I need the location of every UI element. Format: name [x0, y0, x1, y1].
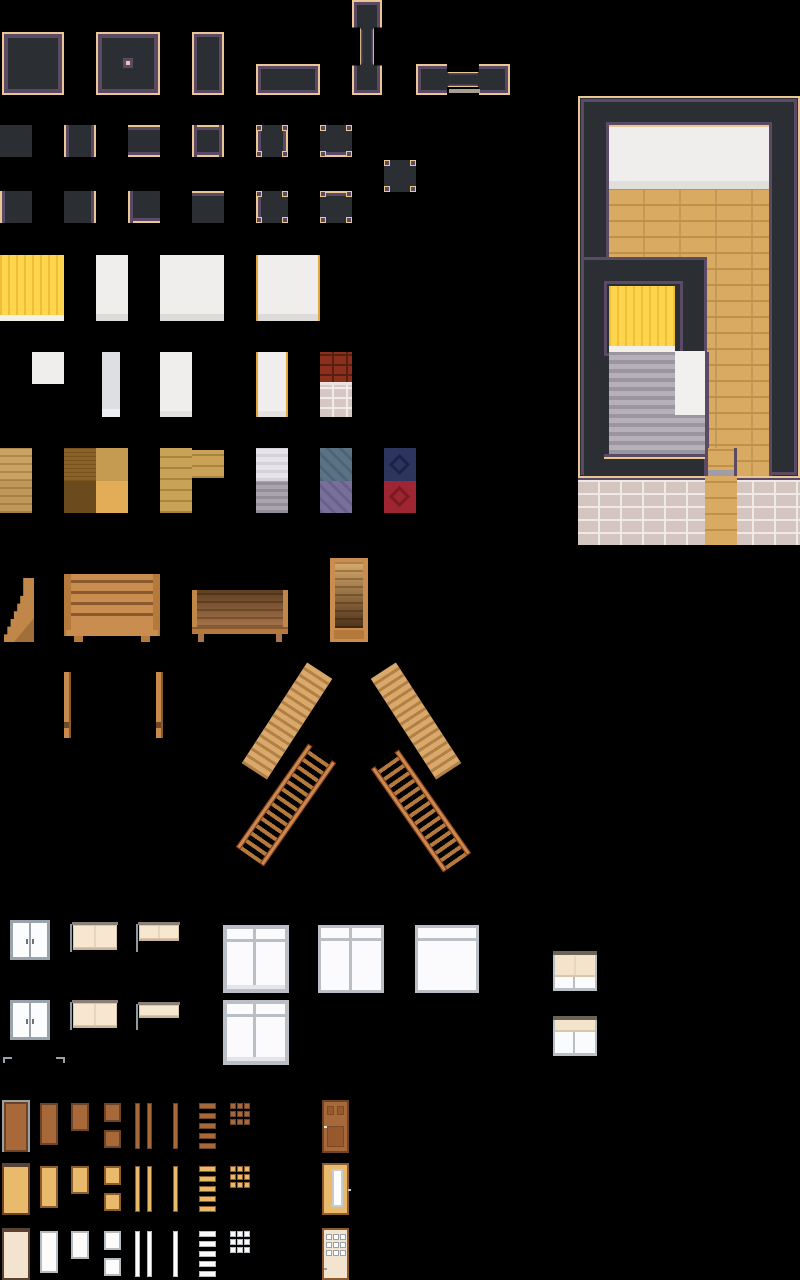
door-tan-grid: [230, 1166, 250, 1188]
cell: [237, 1166, 243, 1172]
glass: [555, 1032, 595, 1053]
wall-shadow: [609, 181, 769, 189]
diamond-motif: [389, 486, 410, 507]
edge-right-cream: [94, 191, 96, 223]
handles: [26, 939, 34, 944]
carpet-diamond: [384, 448, 416, 513]
foundation-bricks: [578, 478, 800, 545]
glass: [227, 1004, 285, 1061]
bottom-edge: [139, 1016, 179, 1018]
door-tan-bar-1: [135, 1166, 140, 1212]
wall-block-purple: [258, 66, 318, 93]
cell: [230, 1166, 236, 1172]
wall-tile-lb: [128, 191, 160, 223]
wood-post-a: [64, 672, 71, 738]
corner-block: [256, 151, 262, 157]
house-preview: [578, 96, 800, 545]
wall-white-tall-orange: [256, 352, 288, 417]
divider: [94, 926, 96, 947]
edge-bottom-purple: [128, 152, 160, 155]
corner-block: [346, 151, 352, 157]
cell: [244, 1247, 250, 1253]
window-shade-a: [553, 951, 597, 991]
shutter-wide-b: [72, 1000, 118, 1028]
door-tan-full: [2, 1163, 30, 1215]
door-leaf: [4, 1102, 28, 1152]
cell: [237, 1103, 243, 1109]
window-cell: [333, 1250, 339, 1256]
edge-left-purple: [194, 125, 197, 157]
wall-white-wide: [160, 255, 224, 321]
door-handle: [324, 1126, 327, 1128]
floor-wood-l-shape: [160, 448, 224, 513]
block-top: [104, 1103, 121, 1122]
curtain-rod-end-left: [3, 1057, 12, 1063]
door-brown-tall: [40, 1103, 58, 1145]
diamond-motif: [389, 454, 410, 475]
rough-dark: [64, 448, 96, 481]
corner-block: [282, 151, 288, 157]
wall-tile-frame: [192, 125, 224, 157]
wall-pillar-vertical: [352, 0, 382, 95]
left-column: [160, 448, 192, 513]
right-post: [153, 574, 160, 636]
shutter-rod-a: [70, 924, 72, 952]
cell: [230, 1103, 236, 1109]
tileset-sheet: [0, 0, 800, 1280]
slat: [199, 1271, 216, 1277]
wall-tile-t-corners: [320, 191, 352, 223]
corner-block: [320, 125, 326, 131]
connector-underline: [449, 89, 480, 93]
mullion: [349, 928, 352, 990]
cell: [230, 1111, 236, 1117]
corner-block: [282, 191, 288, 197]
door-tan-mid: [71, 1166, 89, 1194]
window-large-c: [223, 1000, 289, 1065]
block-bottom: [104, 1258, 121, 1276]
transom-bar: [227, 1014, 285, 1017]
shadow-edge: [258, 314, 318, 321]
leg-right: [141, 636, 150, 642]
window-cell: [333, 1234, 339, 1240]
edge-left-purple: [66, 125, 69, 157]
wall-white-narrow: [96, 255, 128, 321]
dark-brown: [64, 481, 96, 513]
shutter-short-a: [138, 922, 180, 941]
leg-left: [198, 634, 204, 642]
cell: [230, 1247, 236, 1253]
corner-block: [384, 160, 390, 166]
stair-wedge: [4, 578, 34, 642]
glass: [555, 977, 595, 988]
wall-tile-lr: [64, 125, 96, 157]
shutter-rod-b: [136, 924, 138, 952]
corner-block: [410, 160, 416, 166]
door-brown-grid: [230, 1103, 250, 1125]
corner-block: [346, 191, 352, 197]
lower-planks: [0, 480, 32, 513]
wall-tile-tb: [128, 125, 160, 157]
slat: [199, 1143, 216, 1149]
door-brown-complete: [322, 1100, 349, 1153]
door-tan-bar-2: [147, 1166, 152, 1212]
cell: [244, 1231, 250, 1237]
lower-steps: [256, 481, 288, 513]
right-top: [192, 450, 224, 478]
door-cream-full: [2, 1228, 30, 1280]
light-base: [102, 409, 120, 417]
shutter-rod-d: [136, 1004, 138, 1030]
wedge-shadow: [14, 618, 34, 642]
house-walls: [578, 96, 800, 478]
cell: [244, 1174, 250, 1180]
window-large-a: [223, 925, 289, 993]
corner-block: [320, 191, 326, 197]
bench-crate: [64, 574, 160, 642]
shadow-edge: [96, 314, 128, 321]
edge-right-cream: [94, 125, 96, 157]
leg-left: [74, 636, 83, 642]
slat: [199, 1186, 216, 1192]
corner-block: [256, 125, 262, 131]
slat: [199, 1261, 216, 1267]
bottom-edge: [73, 948, 117, 950]
carpet-diagonal: [320, 448, 352, 513]
door-brown-two-blocks: [104, 1103, 121, 1148]
wood-post-b: [156, 672, 163, 738]
edge-right-purple: [219, 125, 222, 157]
slat: [199, 1133, 216, 1139]
window-cell: [326, 1242, 332, 1248]
cell: [230, 1231, 236, 1237]
door-cream-complete: [322, 1228, 349, 1280]
edge-right-cream: [222, 125, 224, 157]
stairs-railing-right: [371, 750, 471, 873]
center-dot-cream: [126, 61, 130, 65]
back-slats: [196, 590, 284, 627]
window-double-b: [10, 1000, 50, 1040]
shadow-edge: [160, 314, 224, 321]
wall-block-large: [2, 32, 64, 95]
cell: [237, 1231, 243, 1237]
glass: [227, 929, 285, 989]
wall-tile-t: [192, 191, 224, 223]
door-white-tall: [40, 1231, 58, 1273]
mullion: [253, 929, 256, 989]
panel-bottom: [327, 1126, 344, 1147]
balusters: [375, 753, 467, 870]
corner-block: [320, 151, 326, 157]
cell: [237, 1174, 243, 1180]
shutter-short-b: [138, 1002, 180, 1018]
stairs-front-gray: [256, 448, 288, 513]
sill: [227, 985, 285, 989]
panel-top-left: [327, 1106, 334, 1115]
corner-block: [282, 125, 288, 131]
glass-panel: [332, 1169, 343, 1207]
edge-top-purple: [192, 193, 224, 196]
window-large-single: [415, 925, 479, 993]
window-shade-b: [553, 1016, 597, 1056]
curtain-rod-end-right: [56, 1057, 65, 1063]
slat: [199, 1103, 216, 1109]
door-tan-slats: [199, 1166, 216, 1212]
wall-gray-strip: [102, 352, 120, 417]
divider: [158, 926, 160, 938]
slat: [199, 1166, 216, 1172]
connector-fill: [421, 69, 505, 90]
edge-left-purple: [130, 191, 133, 223]
cell: [244, 1103, 250, 1109]
corner-block: [346, 125, 352, 131]
cell: [230, 1174, 236, 1180]
panel: [139, 1005, 179, 1016]
block-bottom: [104, 1193, 121, 1211]
treads: [335, 562, 363, 628]
mullion: [573, 977, 575, 988]
cell: [237, 1111, 243, 1117]
bench-backrest: [192, 590, 288, 642]
door-step: [708, 470, 734, 476]
doorway-column: [705, 448, 737, 545]
slat: [199, 1196, 216, 1202]
brick-chimney: [320, 352, 352, 417]
base-block: [334, 630, 364, 639]
slat: [199, 1113, 216, 1119]
cell: [237, 1119, 243, 1125]
slat: [199, 1251, 216, 1257]
panel-top-right: [337, 1106, 344, 1115]
wall-block-purple: [194, 34, 222, 93]
shade: [555, 1020, 595, 1032]
bottom-edge: [139, 939, 179, 941]
wall-block-fill: [261, 69, 315, 90]
stairs-top-view: [330, 558, 368, 642]
slat: [199, 1241, 216, 1247]
door-brown-mid: [71, 1103, 89, 1131]
corner-block: [282, 217, 288, 223]
cell: [244, 1182, 250, 1188]
slats: [66, 574, 158, 616]
wall-block-half: [192, 32, 224, 95]
pillar-purple: [354, 2, 380, 93]
door-handle: [324, 1268, 327, 1270]
door-white-bar-2: [147, 1231, 152, 1277]
mullion: [253, 1004, 256, 1061]
wall-tile-corners-only: [384, 160, 416, 192]
edge-right-purple: [91, 125, 94, 157]
pillar-fill: [357, 5, 377, 90]
wall-tile-r: [64, 191, 96, 223]
corner-block: [384, 186, 390, 192]
navy-half: [384, 448, 416, 481]
slat: [199, 1231, 216, 1237]
wall-tile-l: [0, 191, 32, 223]
corner-block: [320, 217, 326, 223]
block-bottom: [104, 1130, 121, 1148]
door-handle: [348, 1189, 351, 1191]
transom-bar: [418, 938, 476, 941]
left-post: [64, 574, 71, 636]
cell: [237, 1239, 243, 1245]
window-cell: [333, 1242, 339, 1248]
pink-bricks: [320, 385, 352, 417]
edge-bottom-cream: [128, 155, 160, 157]
window-cell: [340, 1242, 346, 1248]
wall-block-dot: [96, 32, 160, 95]
door-brown-bar-1: [135, 1103, 140, 1149]
room-wall-white: [609, 125, 769, 189]
cell: [237, 1247, 243, 1253]
shadow-edge: [160, 411, 192, 417]
window-cell: [340, 1234, 346, 1240]
cell: [244, 1239, 250, 1245]
leg-right: [276, 634, 282, 642]
post-band: [64, 722, 69, 728]
wall-tile-plain: [0, 125, 32, 157]
corner-block: [410, 186, 416, 192]
mullion: [573, 1032, 575, 1053]
floor-wood-quad: [64, 448, 128, 513]
wall-tile-b-corners: [320, 125, 352, 157]
door-white-slats: [199, 1231, 216, 1277]
wall-tile-l-corners: [256, 191, 288, 223]
slat: [199, 1123, 216, 1129]
board: [66, 616, 158, 630]
shutter-rod-c: [70, 1002, 72, 1030]
divider: [94, 1004, 96, 1025]
yellow-room-floor: [609, 286, 675, 346]
door-brown-full: [2, 1100, 30, 1152]
door-tan-two-blocks: [104, 1166, 121, 1211]
center-dot-purple: [123, 58, 133, 68]
door-brown-bar-2: [147, 1103, 152, 1149]
slat: [199, 1206, 216, 1212]
wall-block-fill: [8, 38, 58, 89]
wall-white-small: [32, 352, 64, 384]
purple-half: [320, 481, 352, 513]
door-jamb-right: [734, 448, 737, 476]
corner-block: [256, 217, 262, 223]
door-brown-bar-3: [173, 1103, 178, 1149]
bottom-edge: [73, 1026, 117, 1028]
stairwell-wall-right: [705, 352, 709, 454]
door-tan-bar-3: [173, 1166, 178, 1212]
wall-block-low: [256, 64, 320, 95]
edge-right-purple: [91, 191, 94, 223]
window-cell: [326, 1250, 332, 1256]
door-brown-slats: [199, 1103, 216, 1149]
upper-steps: [256, 448, 288, 481]
stairwell-border-bottom: [604, 454, 709, 459]
shutter-wide-a: [72, 922, 118, 950]
wall-block-purple: [98, 34, 158, 93]
corner-block: [346, 217, 352, 223]
edge-left-purple: [2, 191, 5, 223]
transom-bar: [227, 939, 285, 942]
cell: [244, 1119, 250, 1125]
corner-block: [256, 191, 262, 197]
cell: [230, 1182, 236, 1188]
block-top: [104, 1166, 121, 1185]
cell: [244, 1111, 250, 1117]
wall-tile-lr-corners: [256, 125, 288, 157]
wall-block-purple: [4, 34, 62, 93]
cell: [244, 1166, 250, 1172]
seat: [192, 627, 288, 634]
smooth-tan: [96, 448, 128, 481]
light-orange: [96, 481, 128, 513]
handles: [26, 1019, 34, 1024]
block-top: [104, 1231, 121, 1250]
baseboard: [0, 315, 64, 321]
cell: [237, 1182, 243, 1188]
door-white-bar-3: [173, 1231, 178, 1277]
shadow-edge: [258, 411, 286, 417]
sill: [227, 1057, 285, 1061]
wall-white-tall: [160, 352, 192, 417]
wall-block-fill: [102, 38, 154, 89]
door-tan-tall: [40, 1166, 58, 1208]
blue-half: [320, 448, 352, 481]
door-white-bar-1: [135, 1231, 140, 1277]
shade-divider: [574, 956, 576, 975]
edge-top-purple: [128, 127, 160, 130]
door-tan-complete: [322, 1163, 349, 1215]
door-white-two-blocks: [104, 1231, 121, 1276]
red-bricks: [320, 352, 352, 384]
window-double-a: [10, 920, 50, 960]
floor-wood-planks: [0, 448, 32, 513]
red-half: [384, 481, 416, 513]
slat: [199, 1176, 216, 1182]
window-large-b: [318, 925, 384, 993]
window-cell: [340, 1250, 346, 1256]
wall-block-fill: [197, 37, 219, 90]
wall-white-orange-trim: [256, 255, 320, 321]
window-cell: [326, 1234, 332, 1240]
door-white-grid: [230, 1231, 250, 1253]
stair-landing: [675, 351, 705, 415]
post-band: [156, 722, 161, 728]
cell: [230, 1119, 236, 1125]
cell: [230, 1239, 236, 1245]
floor-yellow-planks: [0, 255, 64, 321]
door-white-mid: [71, 1231, 89, 1259]
